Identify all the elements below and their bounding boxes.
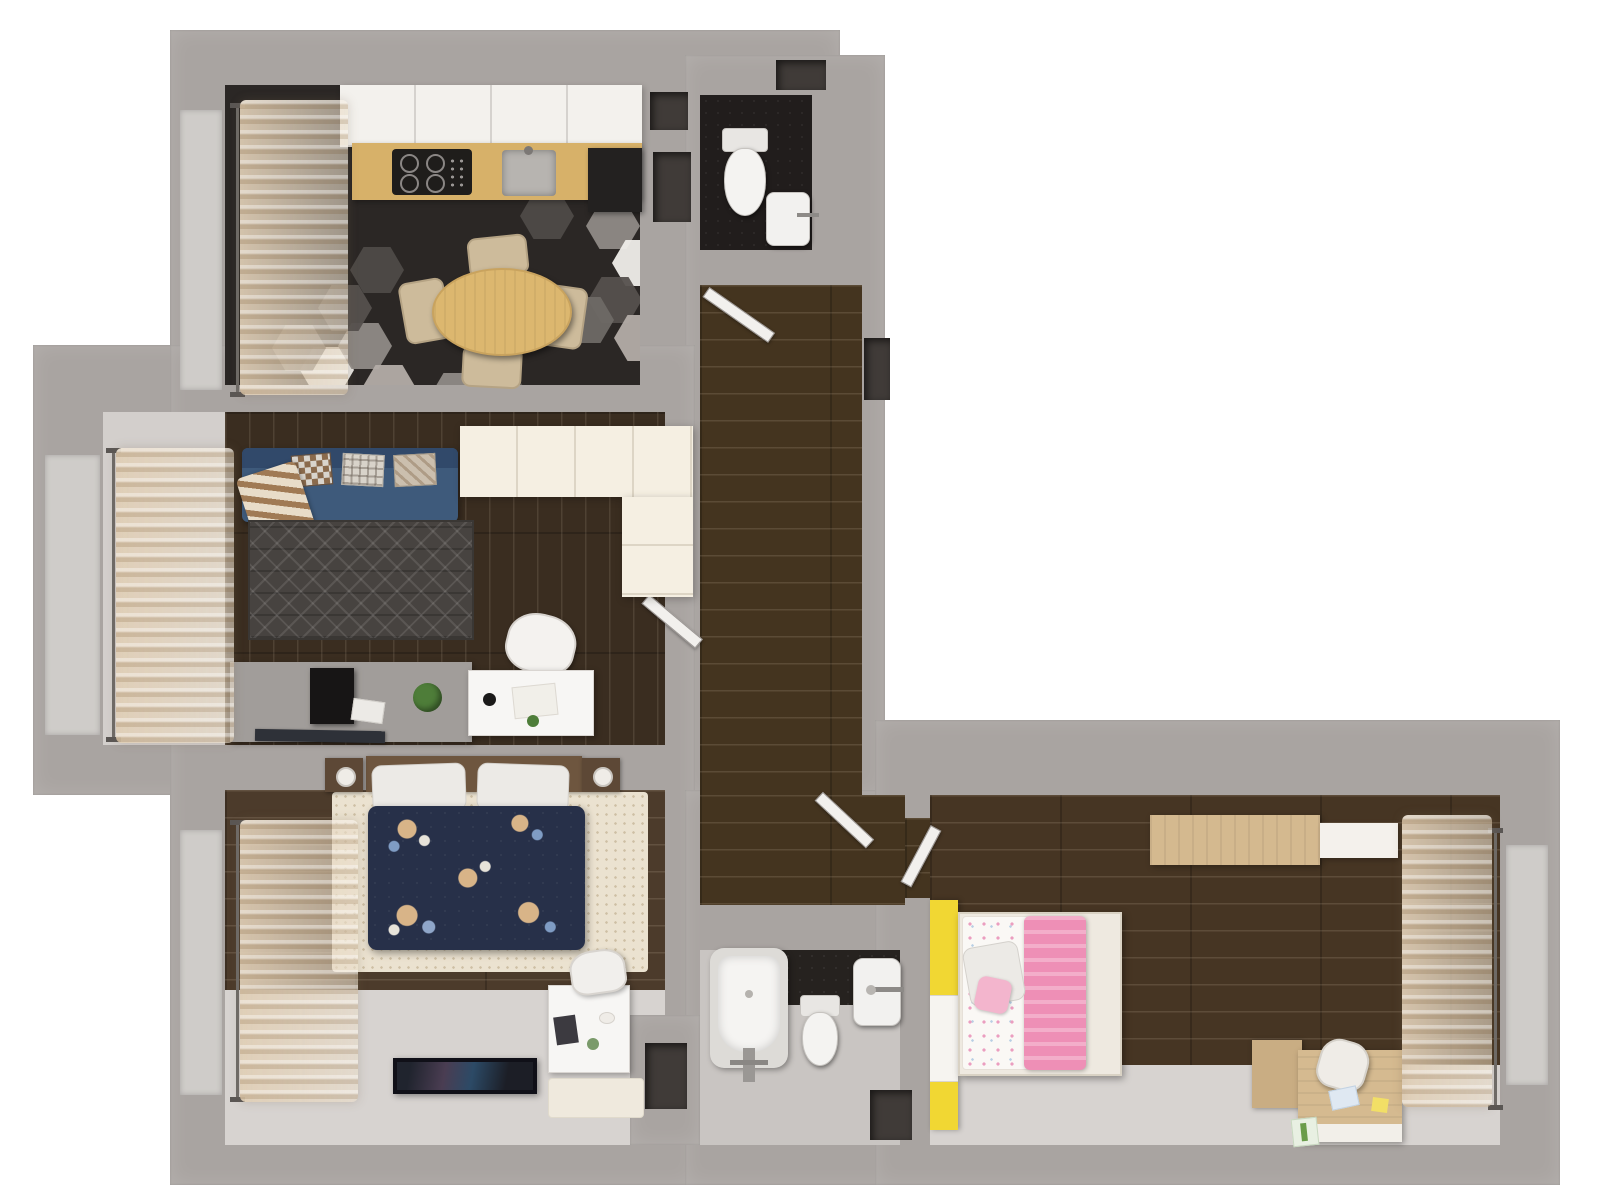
desk-lamp (483, 693, 496, 706)
vent-shaft-kitchen-1 (650, 92, 688, 130)
hob-controls (448, 157, 466, 189)
bathtub-drain (745, 990, 753, 998)
bathroom-sink (853, 958, 901, 1026)
wc-sink (766, 192, 810, 246)
table-lamp (336, 767, 356, 787)
vanity-dish (599, 1012, 615, 1024)
burner (426, 154, 445, 173)
kids-curtain (1402, 815, 1492, 1107)
bedroom-curtain-rod (236, 822, 239, 1100)
burner (400, 154, 419, 173)
desk-papers (511, 683, 558, 719)
floorplan-stage (0, 0, 1600, 1200)
dining-table (432, 268, 572, 356)
kids-curtain-rod (1494, 830, 1497, 1108)
console-papers (351, 698, 386, 724)
bathroom-sink-drain (866, 985, 876, 995)
kids-wall-shelf (1150, 815, 1320, 865)
bedroom-window (180, 830, 222, 1095)
vent-shaft-wc-top (776, 60, 826, 90)
kids-window (1506, 845, 1548, 1085)
bedroom-tv-screen (397, 1062, 533, 1090)
kids-desk-cabinet (1252, 1040, 1302, 1108)
desk-plant-small (527, 715, 539, 727)
living-curtain-rod (112, 450, 115, 740)
living-window (45, 455, 100, 735)
kids-book-green (1291, 1117, 1320, 1148)
kitchen-curtain (240, 100, 348, 395)
bedroom-curtain (240, 820, 358, 1102)
burner (400, 174, 419, 193)
hall-floor (700, 795, 905, 905)
corridor-floor (700, 285, 862, 795)
sofa-pillow-plaid (341, 453, 385, 487)
vanity-mat (548, 1078, 644, 1118)
bed-duvet-floral (368, 806, 585, 950)
bathtub-faucet-bar (730, 1060, 768, 1065)
living-rug (248, 520, 474, 640)
bathtub-faucet (743, 1048, 755, 1082)
rod-cap (1488, 1105, 1503, 1110)
wardrobe-cream-main (460, 426, 693, 497)
bathtub-basin (718, 956, 780, 1052)
kitchen-sink (502, 150, 556, 196)
vanity-plant (587, 1038, 599, 1050)
gas-hob (392, 149, 472, 195)
nightstand-left (325, 758, 363, 792)
kids-pink-blanket (1024, 916, 1086, 1070)
kids-cushion (973, 975, 1013, 1015)
fridge (588, 148, 642, 212)
bedroom-tv (393, 1058, 537, 1094)
vanity-magazine (553, 1015, 579, 1046)
floor-magazines (255, 729, 385, 743)
vent-shaft-bathroom (645, 1043, 687, 1109)
bathtub (710, 948, 788, 1068)
wc-sink-faucet (797, 213, 819, 217)
white-desk (468, 670, 594, 736)
table-lamp (593, 767, 613, 787)
wardrobe-cream-column (622, 497, 693, 597)
bathroom-sink-faucet (874, 987, 904, 992)
vanity-desk (548, 985, 630, 1073)
kitchen-upper-cabinets (340, 85, 642, 147)
kids-book-leaf (1300, 1123, 1308, 1142)
potted-plant (413, 683, 442, 712)
bathroom-toilet-bowl (802, 1012, 838, 1066)
entry-niche (870, 1090, 912, 1140)
desktop-pc (310, 668, 354, 724)
yellow-wardrobe-white-segment (930, 995, 958, 1082)
vent-shaft-corridor (864, 338, 890, 400)
living-curtain (116, 448, 234, 743)
sink-faucet (524, 146, 533, 155)
kitchen-curtain-rod (236, 105, 239, 395)
sofa-pillow (393, 453, 437, 487)
wc-toilet-bowl (724, 148, 766, 216)
vent-shaft-kitchen-2 (653, 152, 691, 222)
kids-wall-shelf-white (1320, 823, 1398, 858)
burner (426, 174, 445, 193)
nightstand-right (582, 758, 620, 792)
kids-paper-yellow (1371, 1097, 1389, 1113)
kitchen-window (180, 110, 222, 390)
